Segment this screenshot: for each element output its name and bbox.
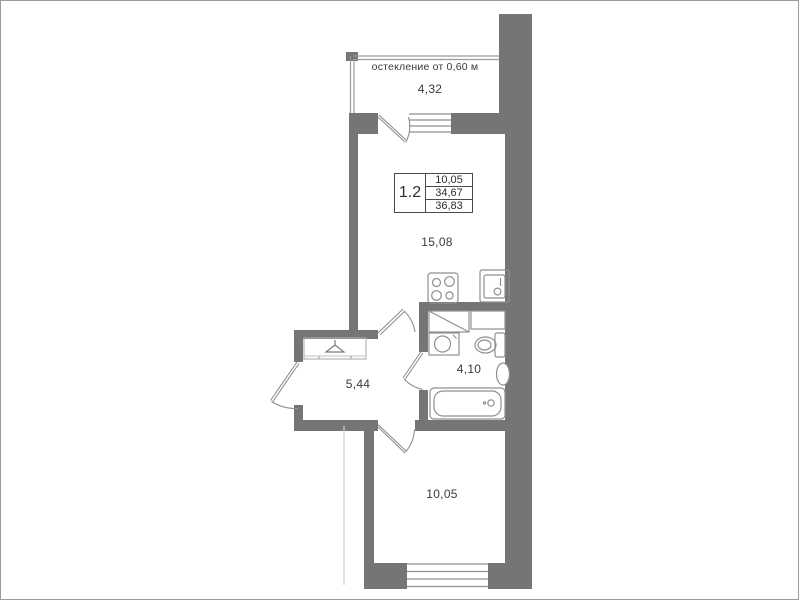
door-swing-icon xyxy=(403,352,423,390)
door-swing-icon xyxy=(378,115,410,142)
stove-icon xyxy=(428,273,458,303)
unit-total-area: 36,83 xyxy=(426,200,472,212)
window-icon xyxy=(409,114,451,132)
living-area-label: 15,08 xyxy=(421,235,453,249)
unit-info-box: 1.2 10,05 34,67 36,83 xyxy=(394,173,473,213)
unit-areas: 10,05 34,67 36,83 xyxy=(426,174,472,212)
wardrobe-hanger-icon xyxy=(304,338,366,359)
unit-living-area: 10,05 xyxy=(426,174,472,187)
hallway-area-label: 5,44 xyxy=(346,377,371,391)
washbasin-icon xyxy=(429,333,459,355)
cabinet-icon xyxy=(429,311,505,332)
floor-plan: остекление от 0,60 м 4,32 15,08 5,44 4,1… xyxy=(0,0,799,600)
bedroom-area-label: 10,05 xyxy=(426,487,458,501)
door-swing-icon xyxy=(378,425,415,454)
kitchen-sink-icon xyxy=(480,270,509,302)
bathroom-area-label: 4,10 xyxy=(457,362,482,376)
towel-rail-icon xyxy=(497,363,510,385)
unit-apartment-area: 34,67 xyxy=(426,187,472,200)
window-icon xyxy=(407,564,488,587)
entrance-door-swing-icon xyxy=(271,362,300,409)
glazing-note: остекление от 0,60 м xyxy=(372,61,479,73)
bathtub-icon xyxy=(430,388,505,419)
plan-linework xyxy=(1,1,799,600)
balcony-area-label: 4,32 xyxy=(418,82,443,96)
door-swing-icon xyxy=(378,309,415,335)
unit-type-label: 1.2 xyxy=(395,174,426,212)
toilet-icon xyxy=(475,333,505,357)
